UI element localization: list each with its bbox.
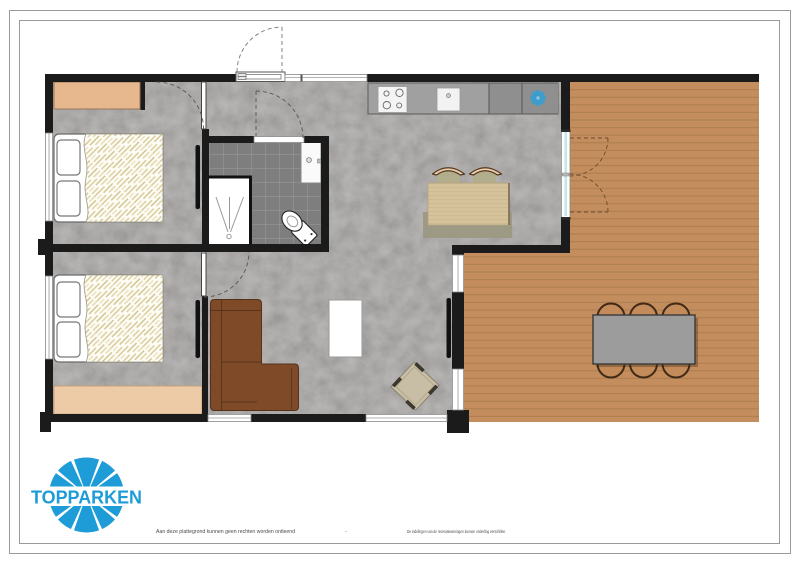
svg-text:-: - — [345, 529, 347, 535]
svg-text:Aan deze plattegrond kunnen ge: Aan deze plattegrond kunnen geen rechten… — [156, 529, 295, 535]
svg-text:TOPPARKEN: TOPPARKEN — [31, 487, 142, 508]
svg-text:De indelingen van de recreatie: De indelingen van de recreatiewoningen k… — [407, 529, 506, 534]
